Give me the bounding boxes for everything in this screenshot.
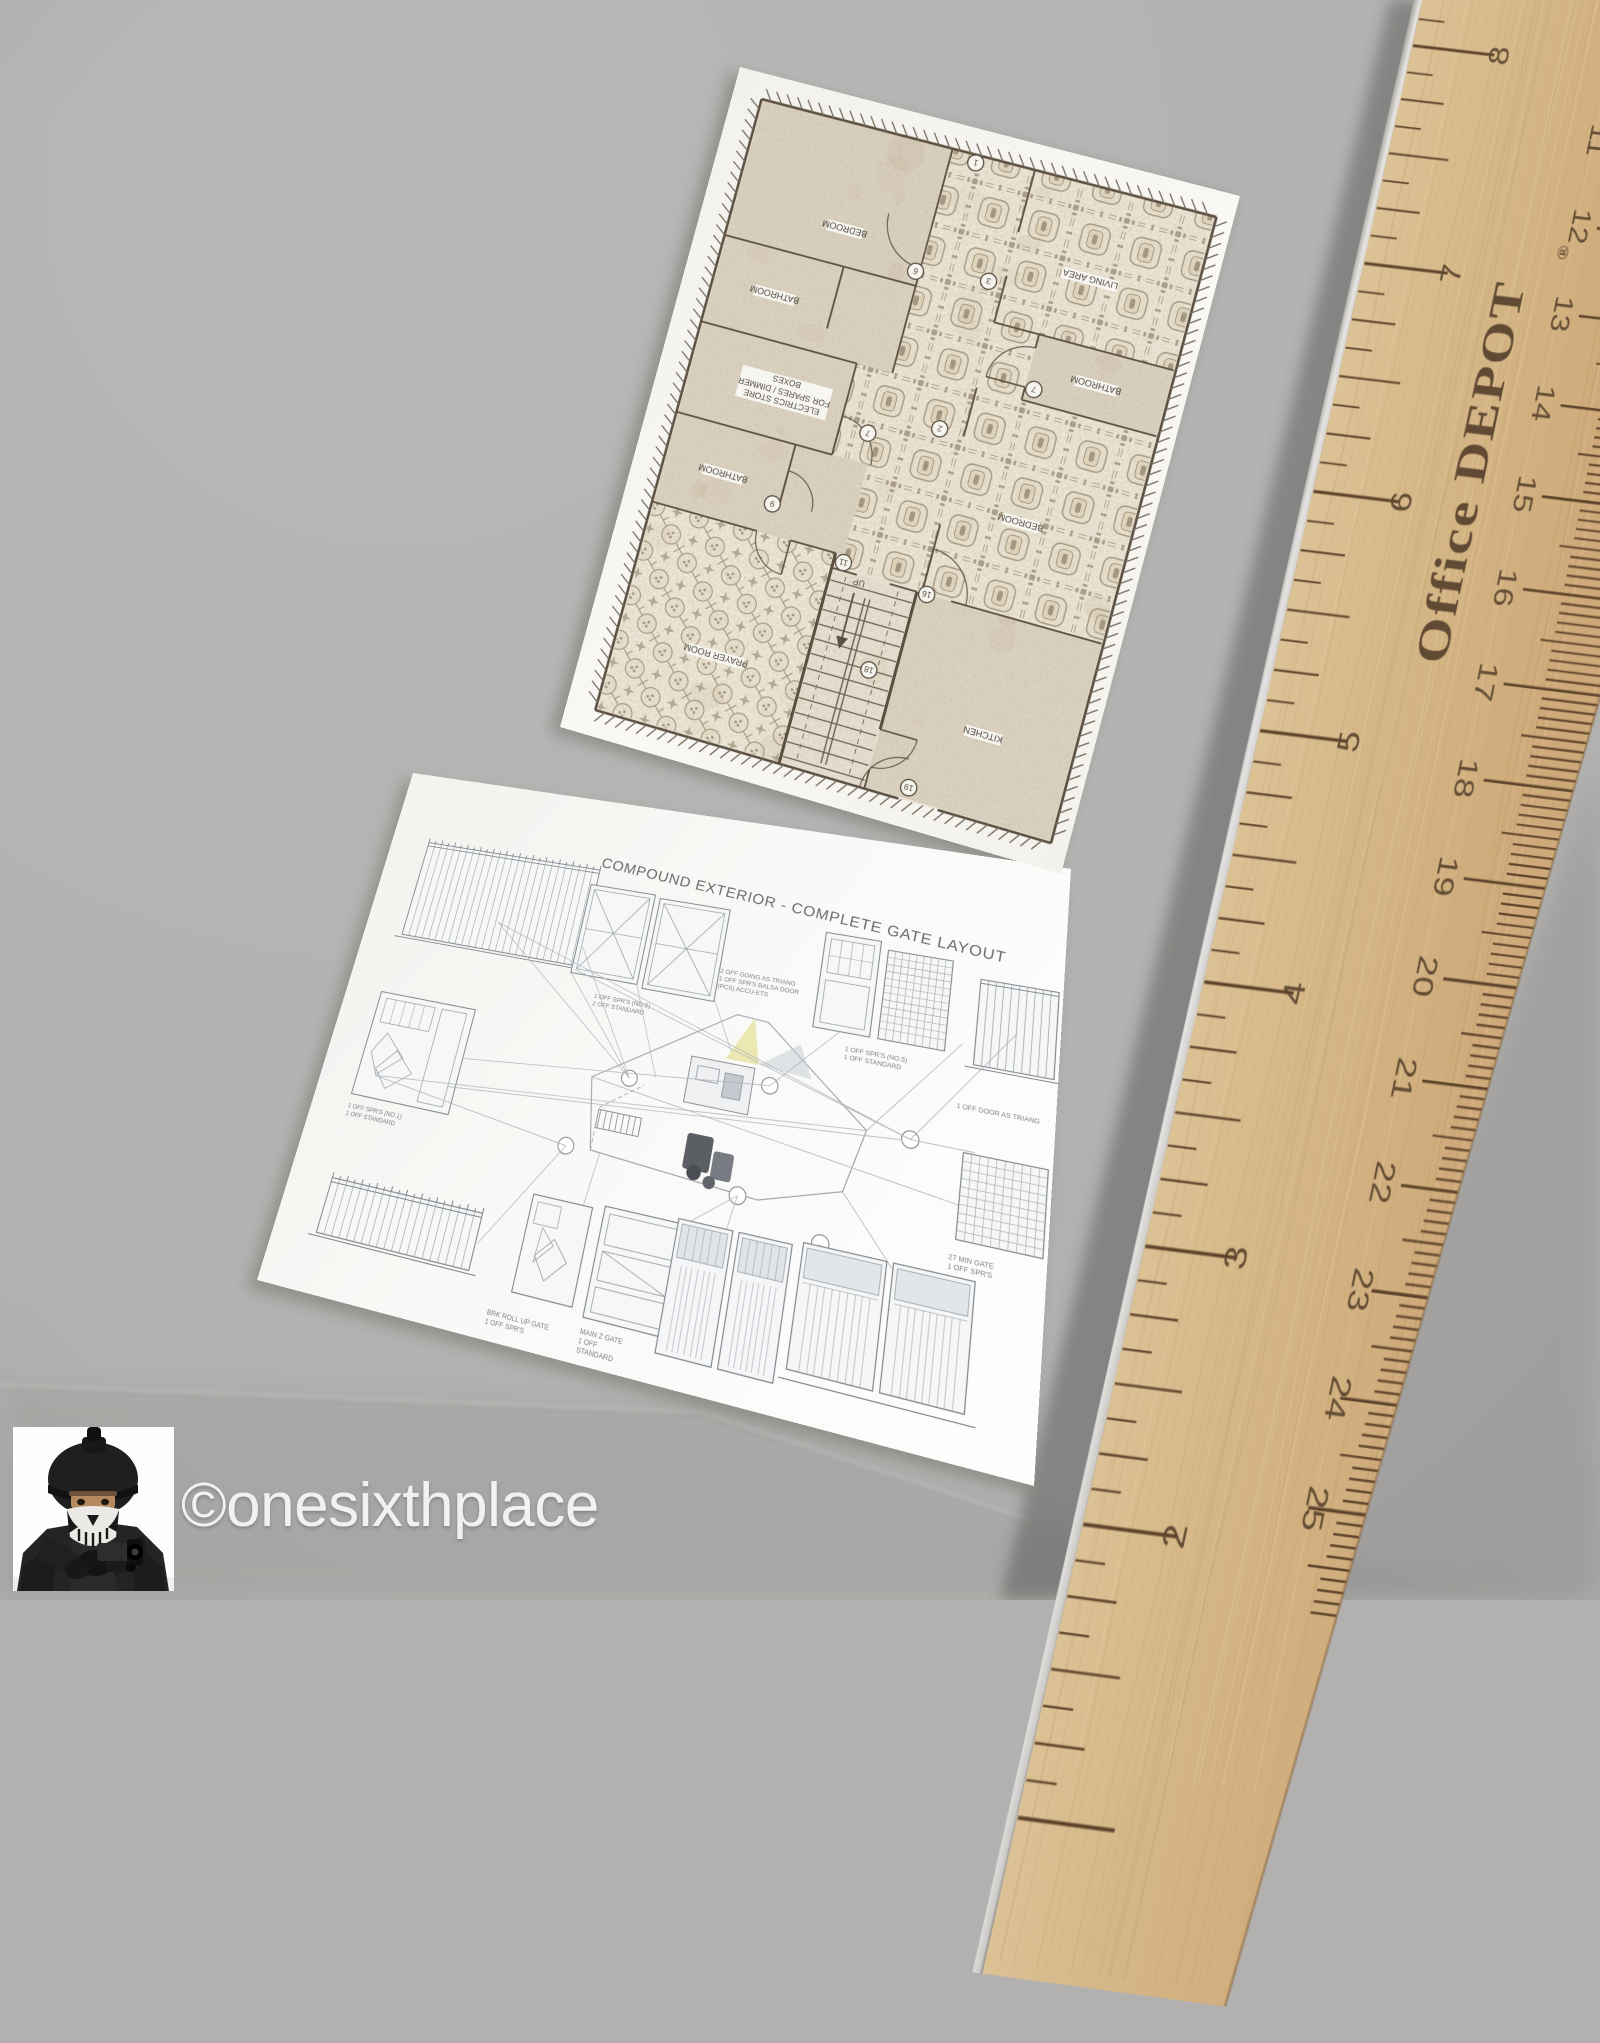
svg-text:5: 5 xyxy=(1330,729,1368,755)
svg-text:6: 6 xyxy=(1383,490,1420,514)
svg-text:2: 2 xyxy=(1154,1522,1195,1552)
svg-text:4: 4 xyxy=(1274,980,1313,1007)
svg-text:®: ® xyxy=(1553,244,1573,261)
svg-text:7: 7 xyxy=(1433,262,1469,285)
svg-text:8: 8 xyxy=(1481,45,1516,67)
svg-text:3: 3 xyxy=(1216,1244,1256,1272)
